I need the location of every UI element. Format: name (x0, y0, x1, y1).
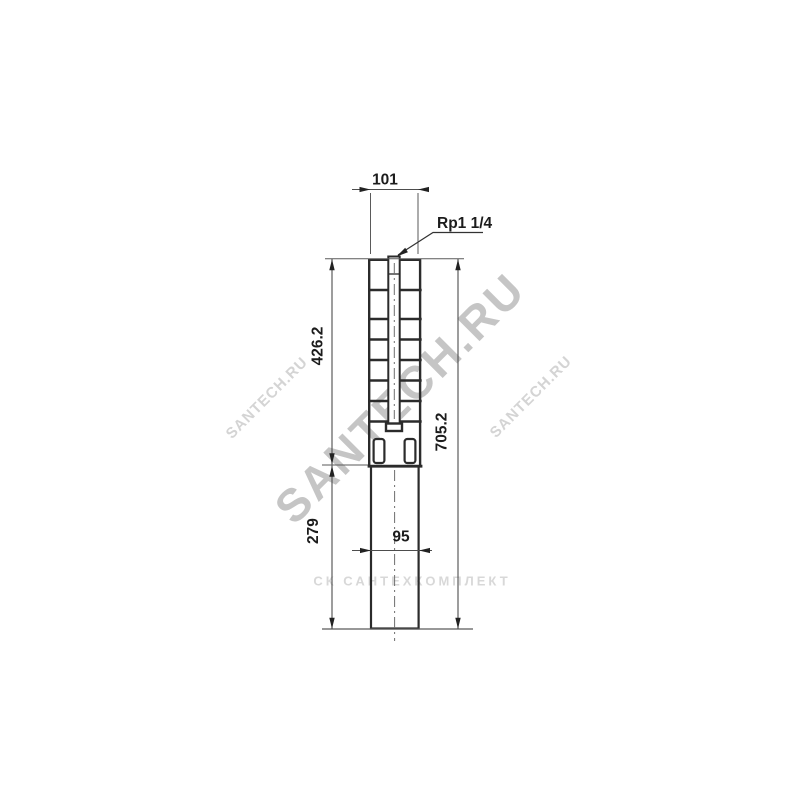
arrowhead (418, 187, 429, 192)
arrowhead (360, 187, 371, 192)
arrowhead (455, 259, 460, 270)
arrowhead (360, 548, 371, 553)
pipe-bottom-cap (386, 424, 402, 432)
dim-text-total-height: 705.2 (434, 413, 451, 452)
pump-dimension-drawing: 101 Rp1 1/4 426.2 705.2 279 95 (0, 0, 800, 800)
dim-text-upper-height: 426.2 (310, 327, 327, 366)
arrowhead (329, 618, 334, 629)
arrowhead (455, 618, 460, 629)
arrowhead (329, 259, 334, 270)
arrowhead (329, 453, 334, 464)
dim-text-connection: Rp1 1/4 (437, 215, 493, 232)
arrowhead (329, 466, 334, 477)
dim-text-top-width: 101 (372, 172, 398, 189)
leader-line-rp (398, 233, 483, 256)
dim-text-lower-height: 279 (305, 518, 322, 544)
inlet-slot-left (374, 439, 385, 463)
dim-text-lower-width: 95 (392, 529, 410, 546)
arrowhead (419, 548, 430, 553)
drawing-canvas: SANTECH.RU SANTECH.RU SANTECH.RU СК САНТ… (0, 0, 800, 800)
inlet-slot-right (405, 439, 416, 463)
